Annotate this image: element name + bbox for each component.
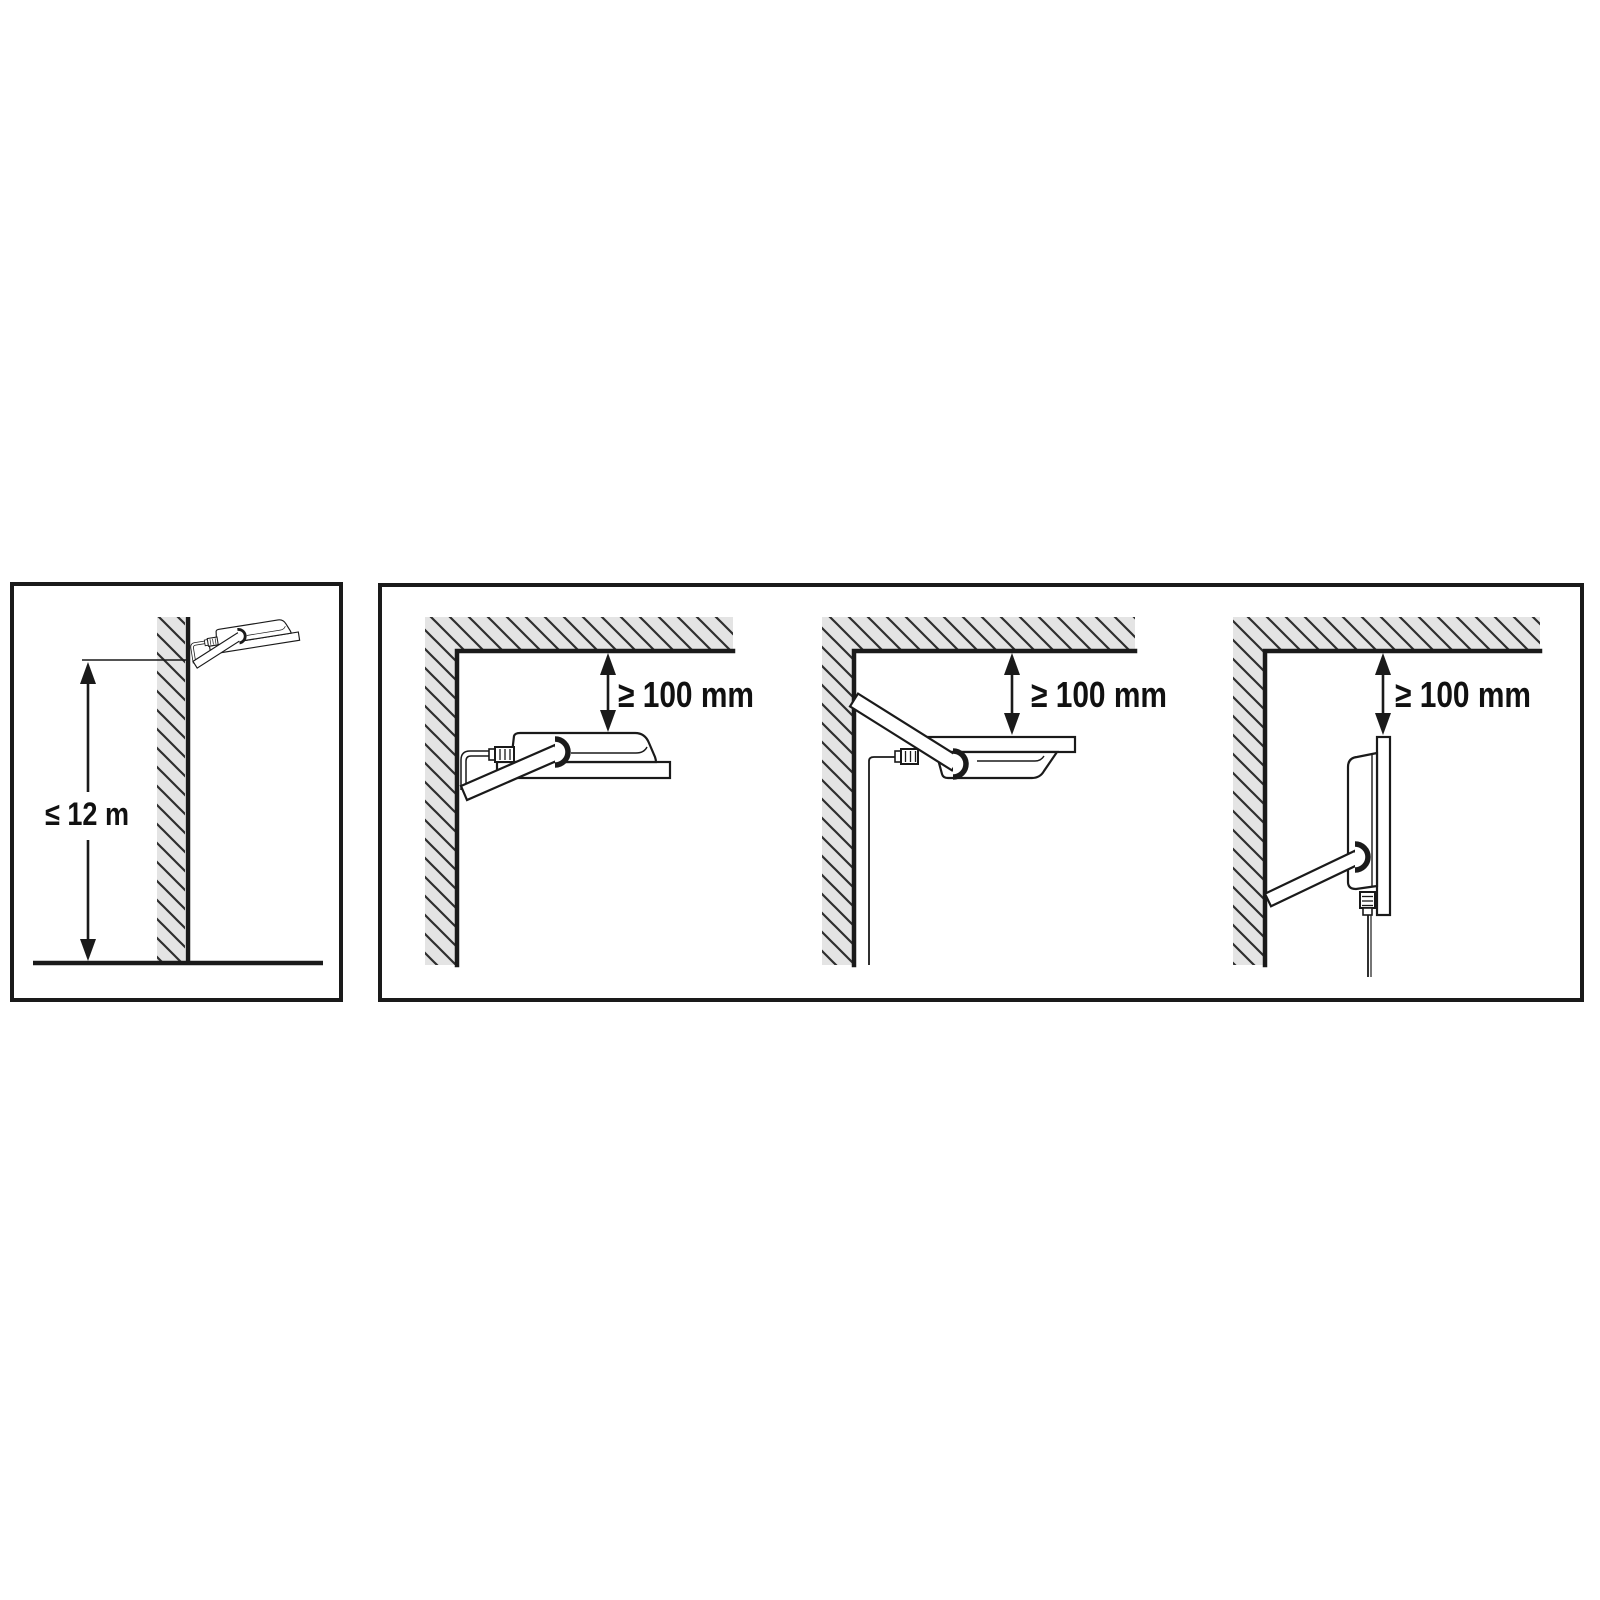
clearance-dimension-arrow — [1004, 653, 1020, 735]
ceiling-clearance-diagrams: ≥ 100 mm ≥ 100 mm — [378, 583, 1584, 1002]
wall-hatched — [157, 617, 188, 965]
clearance-diagram-face-forward: ≥ 100 mm — [1233, 617, 1540, 977]
clearance-label: ≥ 100 mm — [1031, 674, 1167, 715]
clearance-label: ≥ 100 mm — [1395, 674, 1531, 715]
floodlight-aimed-forward — [1265, 737, 1390, 977]
clearance-label: ≥ 100 mm — [618, 674, 754, 715]
floodlight-wall-mounted — [189, 617, 302, 668]
max-height-label: ≤ 12 m — [45, 796, 129, 832]
clearance-dimension-arrow — [1375, 653, 1391, 735]
clearance-diagram-tilted: ≥ 100 mm — [425, 617, 754, 965]
clearance-diagram-face-up: ≥ 100 mm — [822, 617, 1167, 965]
floodlight-aimed-down-forward — [461, 733, 670, 800]
max-mounting-height-diagram: ≤ 12 m — [10, 582, 343, 1002]
clearance-dimension-arrow — [600, 653, 616, 732]
floodlight-aimed-up — [850, 694, 1075, 965]
installation-diagram-page: ≤ 12 m — [0, 0, 1600, 1600]
